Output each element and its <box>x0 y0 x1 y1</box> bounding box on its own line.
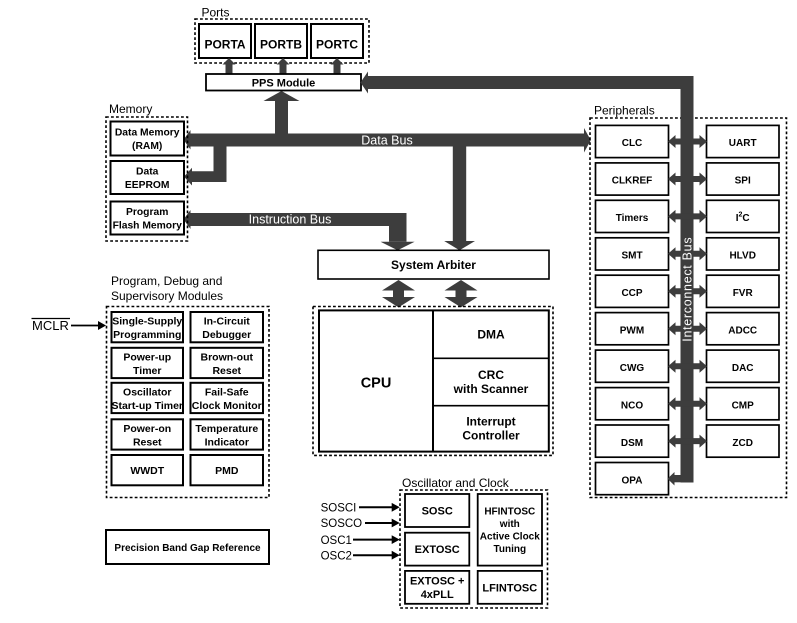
svg-text:LFINTOSC: LFINTOSC <box>482 583 537 595</box>
svg-text:Timers: Timers <box>616 213 649 224</box>
svg-text:SOSC: SOSC <box>422 506 453 518</box>
svg-text:SOSCO: SOSCO <box>321 518 363 530</box>
svg-text:PMD: PMD <box>215 465 239 477</box>
svg-text:I2C: I2C <box>736 212 750 225</box>
svg-text:EEPROM: EEPROM <box>125 180 170 191</box>
svg-text:CMP: CMP <box>732 400 755 411</box>
svg-text:OSC1: OSC1 <box>321 535 352 547</box>
svg-text:CLC: CLC <box>622 138 643 149</box>
svg-text:with Scanner: with Scanner <box>453 382 529 396</box>
svg-text:OPA: OPA <box>622 475 643 486</box>
svg-text:OSC2: OSC2 <box>321 550 352 562</box>
svg-text:SPI: SPI <box>735 176 751 187</box>
svg-text:Start-up Timer: Start-up Timer <box>111 400 183 412</box>
svg-text:NCO: NCO <box>621 400 643 411</box>
svg-text:Active Clock: Active Clock <box>480 532 540 543</box>
svg-text:Tuning: Tuning <box>494 544 527 555</box>
svg-text:EXTOSC +: EXTOSC + <box>410 576 465 588</box>
svg-text:Power-on: Power-on <box>123 423 171 435</box>
svg-text:SMT: SMT <box>621 251 642 262</box>
svg-text:System Arbiter: System Arbiter <box>391 258 476 272</box>
svg-text:Oscillator: Oscillator <box>123 386 171 398</box>
svg-text:Single-Supply: Single-Supply <box>112 316 182 328</box>
svg-text:Temperature: Temperature <box>195 423 258 435</box>
svg-text:Timer: Timer <box>133 365 161 377</box>
svg-text:Data: Data <box>136 167 159 178</box>
svg-text:PORTA: PORTA <box>204 38 245 52</box>
svg-text:SOSCI: SOSCI <box>321 503 357 515</box>
svg-text:DSM: DSM <box>621 438 643 449</box>
svg-text:PWM: PWM <box>620 325 644 336</box>
svg-text:Brown-out: Brown-out <box>201 351 254 363</box>
svg-text:Interrupt: Interrupt <box>466 415 515 429</box>
svg-text:DAC: DAC <box>732 363 754 374</box>
svg-text:Ports: Ports <box>202 6 230 20</box>
svg-text:Clock Monitor: Clock Monitor <box>192 400 262 412</box>
svg-text:PPS Module: PPS Module <box>252 78 316 90</box>
svg-text:4xPLL: 4xPLL <box>421 589 454 601</box>
svg-text:with: with <box>499 519 520 530</box>
svg-text:Debugger: Debugger <box>202 329 251 341</box>
svg-text:Oscillator and Clock: Oscillator and Clock <box>402 476 510 490</box>
svg-text:Reset: Reset <box>133 436 162 448</box>
svg-text:Power-up: Power-up <box>123 351 171 363</box>
svg-text:HLVD: HLVD <box>729 251 755 262</box>
svg-text:Data Bus: Data Bus <box>361 134 412 148</box>
svg-text:WWDT: WWDT <box>130 465 164 477</box>
svg-text:CRC: CRC <box>478 368 504 382</box>
svg-text:Supervisory Modules: Supervisory Modules <box>111 289 223 303</box>
svg-text:Memory: Memory <box>109 102 152 116</box>
svg-text:CCP: CCP <box>621 288 642 299</box>
svg-text:Interconnect Bus: Interconnect Bus <box>681 237 695 342</box>
svg-text:ADCC: ADCC <box>728 325 757 336</box>
svg-text:Data Memory: Data Memory <box>115 128 180 139</box>
svg-text:PORTB: PORTB <box>260 38 302 52</box>
svg-text:EXTOSC: EXTOSC <box>415 544 460 556</box>
svg-text:FVR: FVR <box>733 288 754 299</box>
svg-text:Peripherals: Peripherals <box>594 104 655 118</box>
svg-text:Indicator: Indicator <box>205 436 249 448</box>
svg-text:DMA: DMA <box>477 328 505 342</box>
svg-text:HFINTOSC: HFINTOSC <box>484 507 535 518</box>
svg-text:Fail-Safe: Fail-Safe <box>205 386 249 398</box>
svg-text:Flash Memory: Flash Memory <box>113 221 183 232</box>
svg-text:ZCD: ZCD <box>732 438 753 449</box>
svg-text:Reset: Reset <box>212 365 241 377</box>
svg-text:Program, Debug and: Program, Debug and <box>111 274 222 288</box>
svg-text:CLKREF: CLKREF <box>612 176 653 187</box>
svg-text:(RAM): (RAM) <box>132 141 162 152</box>
svg-text:PORTC: PORTC <box>316 38 358 52</box>
svg-text:CPU: CPU <box>361 376 392 392</box>
svg-text:Instruction Bus: Instruction Bus <box>249 213 332 227</box>
svg-text:In-Circuit: In-Circuit <box>204 316 251 328</box>
svg-text:Controller: Controller <box>462 429 520 443</box>
svg-text:Precision Band Gap Reference: Precision Band Gap Reference <box>114 543 261 554</box>
svg-text:CWG: CWG <box>620 363 645 374</box>
svg-text:UART: UART <box>729 138 757 149</box>
svg-text:MCLR: MCLR <box>32 318 69 333</box>
svg-text:Programming: Programming <box>113 329 181 341</box>
svg-text:Program: Program <box>126 207 168 218</box>
